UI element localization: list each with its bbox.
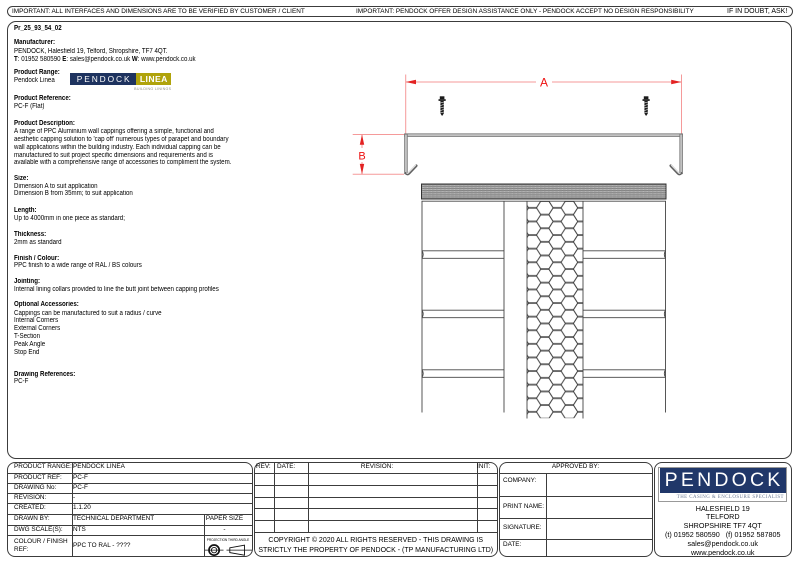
svg-text:B: B	[358, 151, 365, 163]
svg-text:A: A	[540, 76, 548, 90]
